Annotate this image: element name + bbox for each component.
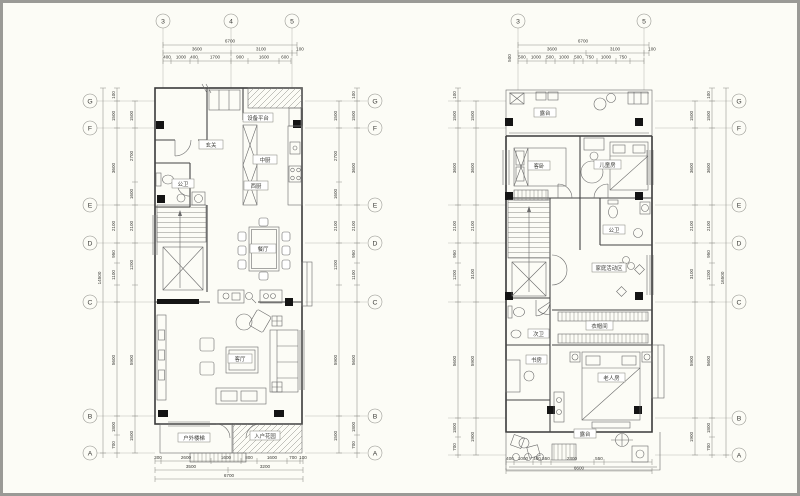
dim-value: 1000: [531, 55, 542, 60]
dim-value: 3100: [256, 47, 267, 52]
left-plan-row-bubbles-left: G F E D C B A: [83, 94, 97, 460]
dim-value: 3600: [192, 47, 203, 52]
dim-value: 14500: [97, 271, 102, 284]
room-label-study: 书房: [526, 355, 547, 364]
room-label-bathroom: 公卫: [603, 225, 625, 234]
left-plan-grid-lines: [97, 28, 367, 453]
dim-value: 3100: [689, 268, 694, 279]
dim-value: 5600: [111, 354, 116, 365]
dim-value: 1800: [452, 422, 457, 433]
right-plan-right-dims: 1500 3600 2100 3100 5900 1900 100 1500 3…: [689, 88, 729, 458]
dim-value: 1500: [689, 110, 694, 121]
right-plan-top-dims: 6700 3600 3100 100 500 500 1000 500 1000…: [507, 39, 656, 65]
room-label-text: 书房: [531, 356, 542, 364]
dim-value: 3100: [610, 47, 621, 52]
dim-value: 100: [648, 47, 656, 52]
left-plan: 3 4 5 G F E D C B A G F E D C B A 6700 3…: [83, 14, 382, 482]
grid-bubble-label: G: [87, 99, 92, 106]
grid-bubble-label: E: [373, 203, 378, 210]
room-label-text: 露台: [580, 430, 591, 438]
dim-value: 700: [289, 455, 297, 460]
dim-value: 100: [299, 455, 307, 460]
dim-value: 500: [546, 55, 554, 60]
dim-value: 600: [281, 55, 289, 60]
right-plan-family-area: [617, 257, 645, 297]
dim-value: 1600: [333, 188, 338, 199]
left-plan-right-dims: 1500 2700 1600 2100 1200 5900 1500 100 1…: [333, 88, 360, 458]
dim-value: 2100: [706, 220, 711, 231]
dim-value: 800: [245, 455, 253, 460]
dim-value: 1500: [452, 110, 457, 121]
dim-value: 1600: [259, 55, 270, 60]
room-label-text: 儿童房: [599, 161, 615, 169]
grid-bubble-label: 4: [229, 19, 233, 26]
dim-value: 1200: [706, 269, 711, 280]
dim-value: 2100: [129, 220, 134, 231]
dim-value: 3100: [470, 268, 475, 279]
grid-bubble-label: G: [736, 99, 741, 106]
dim-value: 100: [296, 47, 304, 52]
dim-value: 700: [706, 443, 711, 451]
grid-bubble-label: B: [88, 414, 93, 421]
room-label-bath: 公卫: [172, 179, 194, 188]
room-label-kids-room: 儿童房: [594, 160, 621, 169]
dim-value: 500: [518, 55, 526, 60]
room-label-text: 中厨: [260, 156, 271, 164]
room-label-entry: 玄关: [199, 140, 223, 149]
right-plan-stairs: [508, 200, 550, 296]
dim-value: 950: [452, 250, 457, 258]
dim-value: 2100: [333, 220, 338, 231]
dim-value: 5900: [333, 354, 338, 365]
left-plan-living-set: [157, 309, 298, 404]
room-label-text: 露台: [540, 109, 551, 117]
room-label-terrace-bottom: 露台: [574, 429, 596, 438]
dim-value: 5600: [351, 354, 356, 365]
grid-bubble-label: D: [88, 241, 93, 248]
dim-value: 3600: [547, 47, 558, 52]
dim-value: 1900: [470, 431, 475, 442]
dim-value: 1100: [111, 270, 116, 280]
room-label-text: 玄关: [206, 141, 217, 149]
room-label-text: 客卧: [534, 162, 545, 170]
grid-bubble-label: C: [88, 300, 93, 307]
left-plan-stairs: [157, 205, 206, 290]
left-plan-row-bubbles-right: G F E D C B A: [368, 94, 382, 460]
grid-bubble-label: G: [372, 99, 377, 106]
right-plan: 3 5 G F E D C B A 6700 3600 3100 100 500…: [448, 14, 746, 474]
dim-value: 950: [706, 250, 711, 258]
dim-value: 6700: [578, 39, 589, 44]
right-plan-left-dims: 100 1500 3600 2100 950 1200 5600 1800 70…: [452, 88, 479, 458]
room-label-entry-garden: 入户花园: [250, 431, 280, 440]
dim-value: 400: [190, 55, 198, 60]
grid-bubble-label: B: [737, 416, 742, 423]
dim-value: 1200: [129, 259, 134, 270]
grid-bubble-label: A: [88, 451, 93, 458]
right-plan-master-bedroom: [554, 352, 652, 428]
right-plan-study: [506, 360, 534, 392]
dim-value: 2100: [351, 220, 356, 231]
room-label-terrace-top: 露台: [534, 108, 556, 117]
dim-value: 1200: [452, 269, 457, 280]
dim-value: 2100: [689, 220, 694, 231]
room-label-kitchen-west: 西厨: [244, 181, 268, 190]
grid-bubble-label: D: [737, 241, 742, 248]
room-label-equipment: 设备平台: [243, 113, 273, 122]
dim-value: 900: [236, 55, 244, 60]
dim-value: 3600: [470, 162, 475, 173]
dim-value: 5900: [470, 355, 475, 366]
dim-value: 1500: [129, 110, 134, 121]
dim-value: 300: [154, 455, 162, 460]
left-plan-column-bubbles: 3 4 5: [156, 14, 299, 28]
floor-plan-canvas: 3 4 5 G F E D C B A G F E D C B A 6700 3…: [0, 0, 800, 496]
room-label-family-area: 家庭活动区: [592, 263, 626, 272]
room-label-closet: 衣帽间: [586, 321, 613, 330]
grid-bubble-label: A: [737, 453, 742, 460]
room-label-text: 衣帽间: [591, 322, 607, 330]
grid-bubble-label: 3: [161, 19, 165, 26]
dim-value: 2100: [452, 220, 457, 231]
sheet-border: [2, 2, 799, 495]
room-label-outdoor-stairs: 户外楼梯: [178, 433, 210, 442]
dim-value: 100: [706, 91, 711, 99]
room-label-text: 餐厅: [258, 245, 269, 253]
dim-value: 700: [351, 441, 356, 449]
dim-value: 5600: [706, 355, 711, 366]
room-label-text: 公卫: [178, 181, 189, 188]
dim-value: 1500: [333, 110, 338, 121]
room-label-text: 设备平台: [247, 114, 269, 122]
grid-bubble-label: 3: [516, 19, 520, 26]
grid-bubble-label: 5: [642, 19, 646, 26]
dim-value: 1800: [706, 422, 711, 433]
right-plan-terrace-top: [510, 92, 648, 110]
grid-bubble-label: C: [737, 300, 742, 307]
room-label-text: 客厅: [235, 355, 246, 363]
dim-value: 3600: [689, 162, 694, 173]
right-plan-row-bubbles: G F E D C B A: [732, 94, 746, 462]
dim-value: 6700: [224, 473, 235, 478]
dim-value: 400: [163, 55, 171, 60]
left-plan-left-dims: 14500 100 1500 3600 2100 950 1100 5600 1…: [97, 88, 138, 458]
left-plan-top-dims: 6700 3600 3100 100 400 1000 400 1700 900…: [163, 39, 304, 65]
dim-value: 6700: [225, 39, 236, 44]
dim-value: 2100: [111, 220, 116, 231]
dim-value: 1000: [176, 55, 187, 60]
left-plan-equipment-hatch: [248, 88, 302, 108]
dim-value: 700: [452, 443, 457, 451]
room-label-text: 西厨: [251, 183, 262, 190]
dim-value: 1500: [351, 110, 356, 121]
grid-bubble-label: C: [373, 300, 378, 307]
dim-value: 1600: [267, 455, 278, 460]
dim-value: 1500: [111, 110, 116, 121]
room-label-living: 客厅: [228, 354, 252, 363]
right-plan-bottom-dims: 400 1000 400 550 2300 550 6600: [506, 456, 652, 474]
room-label-text: 老人房: [603, 374, 619, 382]
dim-value: 1700: [210, 55, 221, 60]
dim-value: 100: [111, 91, 116, 99]
dim-value: 3600: [111, 162, 116, 173]
room-label-kitchen-cn: 中厨: [253, 155, 277, 164]
dim-value: 750: [586, 55, 594, 60]
dim-value: 2700: [333, 150, 338, 161]
dim-value: 5900: [689, 355, 694, 366]
dim-value: 950: [351, 250, 356, 258]
grid-bubble-label: F: [737, 126, 741, 133]
right-plan-grid-lines: [448, 28, 731, 455]
dim-value: 1800: [351, 421, 356, 432]
dim-value: 1900: [689, 431, 694, 442]
room-label-bathroom2: 次卫: [528, 329, 549, 338]
dim-value: 1000: [559, 55, 570, 60]
room-label-text: 次卫: [533, 330, 544, 338]
dim-value: 1500: [129, 430, 134, 441]
floor-plan-sheet: 3 4 5 G F E D C B A G F E D C B A 6700 3…: [0, 0, 800, 496]
dim-value: 700: [111, 441, 116, 449]
grid-bubble-label: B: [373, 414, 378, 421]
dim-value: 100: [351, 91, 356, 99]
grid-bubble-label: 5: [290, 19, 294, 26]
dim-value: 2100: [470, 220, 475, 231]
grid-bubble-label: F: [373, 126, 377, 133]
room-label-text: 公卫: [609, 227, 620, 234]
dim-value: 5900: [129, 354, 134, 365]
dim-value: 750: [619, 55, 627, 60]
dim-value: 550: [595, 456, 603, 461]
dim-value: 5600: [452, 355, 457, 366]
dim-value: 1800: [111, 421, 116, 432]
room-label-guest-bedroom: 客卧: [528, 161, 550, 170]
dim-value: 1200: [333, 259, 338, 270]
dim-value: 500: [574, 55, 582, 60]
dim-value: 3500: [186, 464, 197, 469]
grid-bubble-label: F: [88, 126, 92, 133]
room-label-dining: 餐厅: [250, 244, 276, 253]
room-label-text: 户外楼梯: [183, 434, 205, 442]
left-plan-entry-closet: [209, 90, 240, 110]
dim-value: 3600: [351, 162, 356, 173]
dim-value: 500: [507, 54, 512, 62]
grid-bubble-label: E: [88, 203, 93, 210]
dim-value: 1500: [706, 110, 711, 121]
grid-bubble-label: A: [373, 451, 378, 458]
grid-bubble-label: E: [737, 203, 742, 210]
dim-value: 2700: [129, 150, 134, 161]
dim-value: 100: [452, 91, 457, 99]
left-plan-western-kitchen-island: [218, 290, 282, 303]
dim-value: 1000: [601, 55, 612, 60]
dim-value: 3600: [706, 162, 711, 173]
room-label-text: 入户花园: [254, 432, 276, 440]
dim-value: 1100: [351, 270, 356, 280]
dim-value: 3600: [452, 162, 457, 173]
grid-bubble-label: D: [373, 241, 378, 248]
dim-value: 1500: [470, 110, 475, 121]
dim-value: 1500: [333, 430, 338, 441]
dim-value: 950: [111, 250, 116, 258]
room-label-master: 老人房: [598, 373, 625, 382]
dim-value: 1600: [129, 188, 134, 199]
right-plan-column-bubbles: 3 5: [511, 14, 651, 28]
dim-value: 16500: [720, 271, 725, 284]
dim-value: 3200: [260, 464, 271, 469]
room-label-text: 家庭活动区: [596, 264, 624, 272]
